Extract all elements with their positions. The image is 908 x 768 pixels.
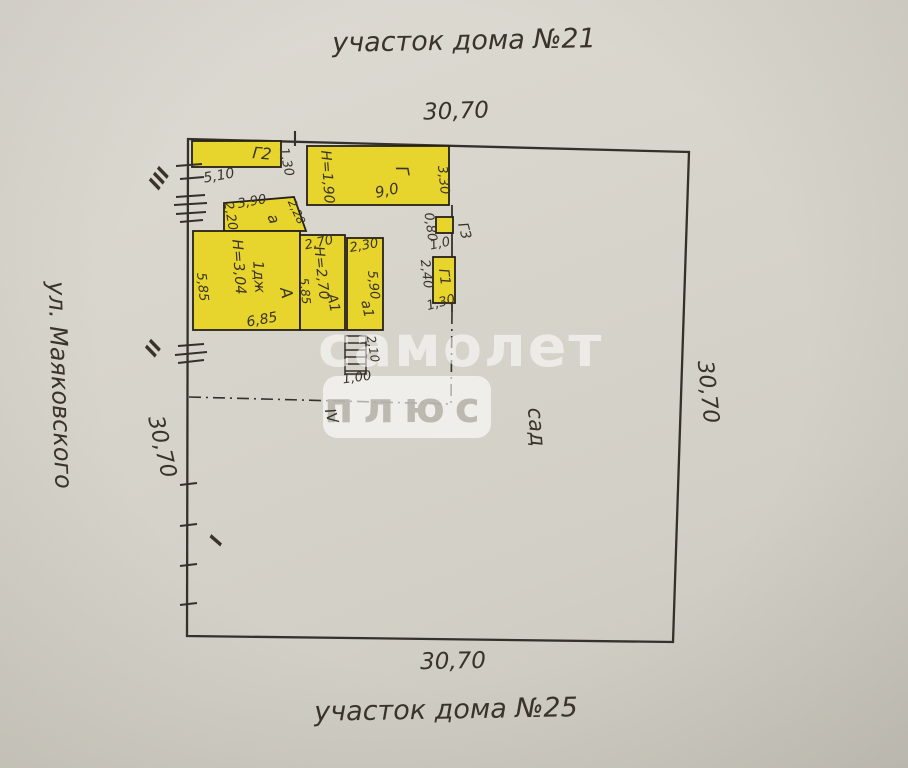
porch-a1-label: а1 — [358, 299, 375, 319]
right-dimension: 30,70 — [693, 360, 721, 425]
annex-a1-label: А1 — [324, 293, 342, 314]
building-g3 — [436, 217, 453, 233]
building-g-height: Н=1,90 — [318, 150, 336, 204]
steps-dim-bottom: 1,00 — [342, 370, 372, 387]
building-g1-label: Г1 — [436, 268, 452, 286]
building-g3-dim-bottom: 1,0 — [429, 235, 452, 252]
building-g3-label: Г3 — [455, 221, 473, 241]
garden-label: сад — [524, 407, 548, 448]
building-g1-dim-left: 2,40 — [418, 259, 434, 289]
house-a-dim-left: 5,85 — [194, 272, 210, 302]
building-g2-label: Г2 — [252, 145, 272, 163]
bottom-dimension: 30,70 — [420, 650, 486, 674]
street-name: ул. Маяковского — [44, 281, 75, 489]
top-plot-title: участок дома №21 — [332, 25, 596, 57]
annex-a1-dim-right: 5,85 — [298, 277, 313, 305]
building-g-dim-right: 3,30 — [435, 165, 451, 195]
site-plan-photo: самолет плюс участок дома №21 30,70 30,7… — [0, 0, 908, 768]
porch-a1-dim-right: 5,90 — [365, 270, 381, 300]
watermark-plus-text: плюс — [324, 383, 490, 432]
top-dimension: 30,70 — [423, 99, 490, 124]
house-a-height: Н=3,04 — [229, 239, 247, 295]
bottom-plot-title: участок дома №25 — [314, 694, 578, 726]
house-a-type: 1дж — [250, 260, 267, 293]
